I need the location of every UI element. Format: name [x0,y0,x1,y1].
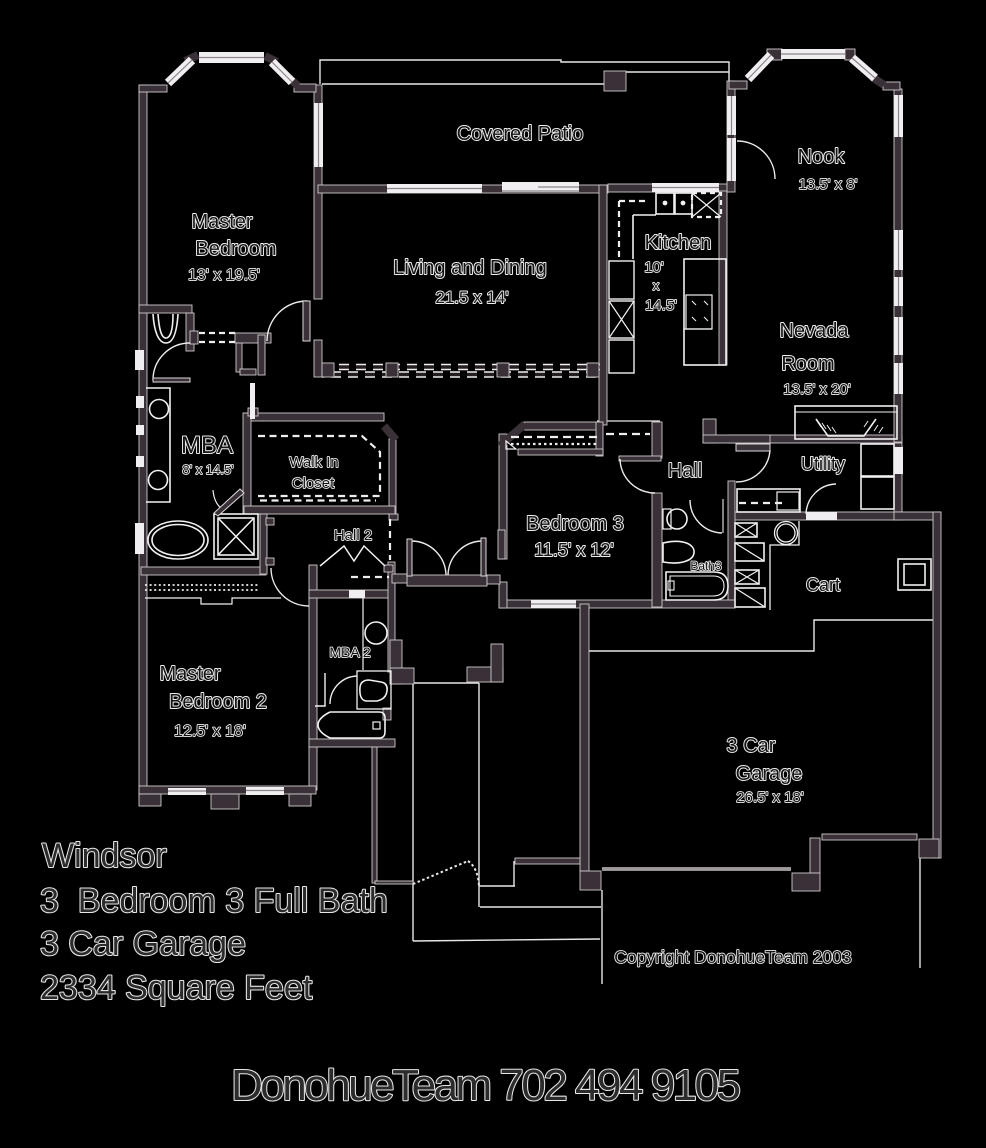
svg-text:MBA: MBA [181,432,233,459]
svg-text:10': 10' [644,259,664,276]
svg-text:Bedroom 2: Bedroom 2 [169,691,267,713]
svg-text:Bath3: Bath3 [690,559,722,573]
svg-text:21.5 x 14': 21.5 x 14' [435,288,508,307]
svg-text:DonohueTeam 702 494 9105: DonohueTeam 702 494 9105 [231,1061,740,1110]
svg-text:Closet: Closet [292,475,335,492]
svg-text:x: x [653,278,660,293]
svg-text:13.5' x 8': 13.5' x 8' [798,176,857,193]
svg-text:8' x 14.5': 8' x 14.5' [182,462,233,477]
svg-text:MBA 2: MBA 2 [329,644,370,660]
svg-text:3 Car: 3 Car [727,735,776,757]
svg-text:Living and Dining: Living and Dining [393,257,546,279]
svg-text:Room: Room [781,353,834,375]
svg-text:2334 Square Feet: 2334 Square Feet [40,969,313,1007]
svg-text:Cart: Cart [806,575,840,595]
svg-text:Nevada: Nevada [780,320,850,342]
svg-text:Garage: Garage [736,763,803,785]
svg-text:Covered Patio: Covered Patio [457,123,584,145]
svg-text:3 Car Garage: 3 Car Garage [40,925,246,963]
svg-text:Hall: Hall [668,460,702,482]
svg-text:13.5' x 20': 13.5' x 20' [783,381,851,398]
svg-text:Nook: Nook [798,146,846,168]
svg-text:Walk In: Walk In [289,454,338,471]
svg-text:Master: Master [159,663,220,685]
svg-text:Utility: Utility [801,454,845,474]
svg-text:Kitchen: Kitchen [645,232,712,254]
svg-text:11.5' x 12': 11.5' x 12' [534,540,614,560]
svg-text:12.5' x 18': 12.5' x 18' [174,723,246,740]
svg-text:14.5': 14.5' [645,297,677,314]
svg-text:Copyright DonohueTeam 2003: Copyright DonohueTeam 2003 [614,947,851,967]
svg-text:Bedroom: Bedroom [195,238,276,260]
svg-text:26.5' x 18': 26.5' x 18' [736,789,804,806]
svg-text:Master: Master [191,211,252,233]
svg-text:Windsor: Windsor [42,837,167,875]
svg-text:3 Bedroom 3 Full Bath: 3 Bedroom 3 Full Bath [40,882,388,920]
svg-text:Hall 2: Hall 2 [334,527,372,544]
svg-text:Bedroom 3: Bedroom 3 [526,513,624,535]
svg-text:13' x 19.5': 13' x 19.5' [188,267,260,284]
